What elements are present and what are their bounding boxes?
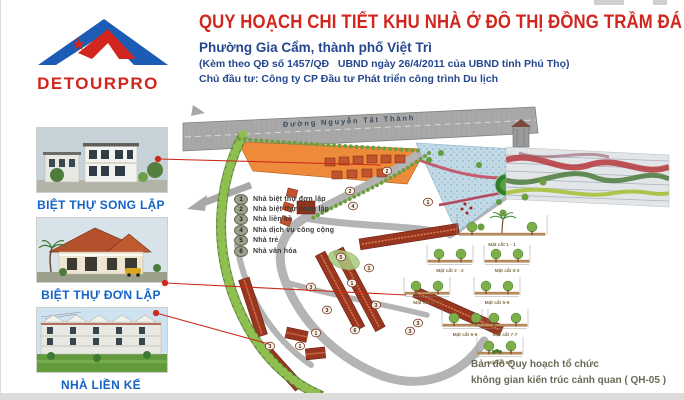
scan-artifact	[594, 0, 624, 5]
svg-text:1: 1	[351, 281, 354, 287]
card-label: NHÀ LIỀN KẾ	[36, 378, 166, 392]
svg-text:1: 1	[368, 266, 371, 272]
svg-text:6: 6	[354, 328, 357, 334]
subtitle: Phường Gia Cẩm, thành phố Việt Trì	[199, 40, 679, 55]
section-label-6: Mặt cắt 7-7	[493, 331, 518, 338]
card-label: BIỆT THỰ ĐƠN LẬP	[36, 288, 166, 302]
header: QUY HOẠCH CHI TIẾT KHU NHÀ Ở ĐÔ THỊ ĐỒNG…	[199, 12, 679, 85]
card-label: BIỆT THỰ SONG LẬP	[36, 198, 166, 212]
villa-song-lap-photo	[36, 127, 168, 193]
svg-text:1: 1	[315, 331, 318, 337]
road-arrow-up-icon	[191, 105, 205, 116]
road-arrow-left-icon	[187, 195, 207, 211]
landscape-elevation-band	[506, 147, 669, 207]
card-biet-thu-song-lap: BIỆT THỰ SONG LẬP	[36, 127, 166, 212]
legend-badge: 3	[234, 214, 248, 225]
detourpro-logo: ★ DETOURPRO	[16, 6, 178, 100]
svg-text:3: 3	[326, 308, 329, 314]
card-nha-lien-ke: NHÀ LIỀN KẾ	[36, 307, 166, 392]
card-biet-thu-don-lap: BIỆT THỰ ĐƠN LẬP	[36, 217, 166, 302]
svg-text:2: 2	[386, 169, 389, 175]
villa-don-lap-photo	[36, 217, 168, 283]
legend-item: 1 Nhà biệt thự đơn lập	[234, 194, 334, 204]
svg-text:3: 3	[310, 285, 313, 291]
section-label-3: Mặt cắt 4 - 4	[413, 299, 441, 306]
star-icon: ★	[71, 35, 86, 54]
scan-artifact	[653, 0, 667, 5]
legend-badge: 6	[234, 246, 248, 257]
svg-text:3: 3	[375, 303, 378, 309]
map-caption: Bản đồ Quy hoạch tổ chức không gian kiến…	[471, 357, 681, 388]
section-label-2: Mặt cắt 3-3	[495, 267, 520, 274]
svg-text:3: 3	[269, 344, 272, 350]
investor-line: Chủ đầu tư: Công ty CP Đầu tư Phát triển…	[199, 73, 679, 85]
logo-brand-text: DETOURPRO	[37, 74, 159, 93]
decision-line: (Kèm theo QĐ số 1457/QĐ UBND ngày 26/4/2…	[199, 58, 679, 70]
svg-text:5: 5	[340, 255, 343, 261]
row-houses-photo	[36, 307, 168, 373]
legend-item: 6 Nhà văn hóa	[234, 246, 334, 256]
svg-text:1: 1	[299, 344, 302, 350]
svg-text:1: 1	[427, 200, 430, 206]
section-label-5: Mặt cắt 6-6	[453, 331, 478, 338]
legend-badge: 2	[234, 204, 248, 215]
planning-poster: ★ DETOURPRO QUY HOẠCH CHI TIẾT KHU NHÀ Ở…	[0, 0, 684, 400]
legend-badge: 5	[234, 235, 248, 246]
page-title: QUY HOẠCH CHI TIẾT KHU NHÀ Ở ĐÔ THỊ ĐỒNG…	[199, 12, 679, 34]
legend-item: 2 Nhà biệt thự song lập	[234, 204, 334, 214]
legend: 1 Nhà biệt thự đơn lập 2 Nhà biệt thự so…	[234, 194, 334, 256]
caption-line-1: Bản đồ Quy hoạch tổ chức	[471, 357, 681, 373]
section-label-4: Mặt cắt 5-5	[485, 299, 510, 306]
legend-badge: 1	[234, 194, 248, 205]
svg-text:4: 4	[352, 204, 355, 210]
legend-item: 3 Nhà liền kề	[234, 215, 334, 225]
svg-text:3: 3	[417, 321, 420, 327]
legend-item: 4 Nhà dịch vụ công cộng	[234, 225, 334, 235]
svg-text:2: 2	[349, 189, 352, 195]
section-label-1: Mặt cắt 2 - 2	[436, 267, 464, 274]
bottom-bar	[1, 393, 684, 400]
svg-text:3: 3	[409, 329, 412, 335]
legend-badge: 4	[234, 225, 248, 236]
caption-line-2: không gian kiến trúc cảnh quan ( QH-05 )	[471, 373, 681, 389]
legend-item: 5 Nhà trẻ	[234, 236, 334, 246]
section-label-0: Mặt cắt 1 - 1	[488, 241, 516, 248]
